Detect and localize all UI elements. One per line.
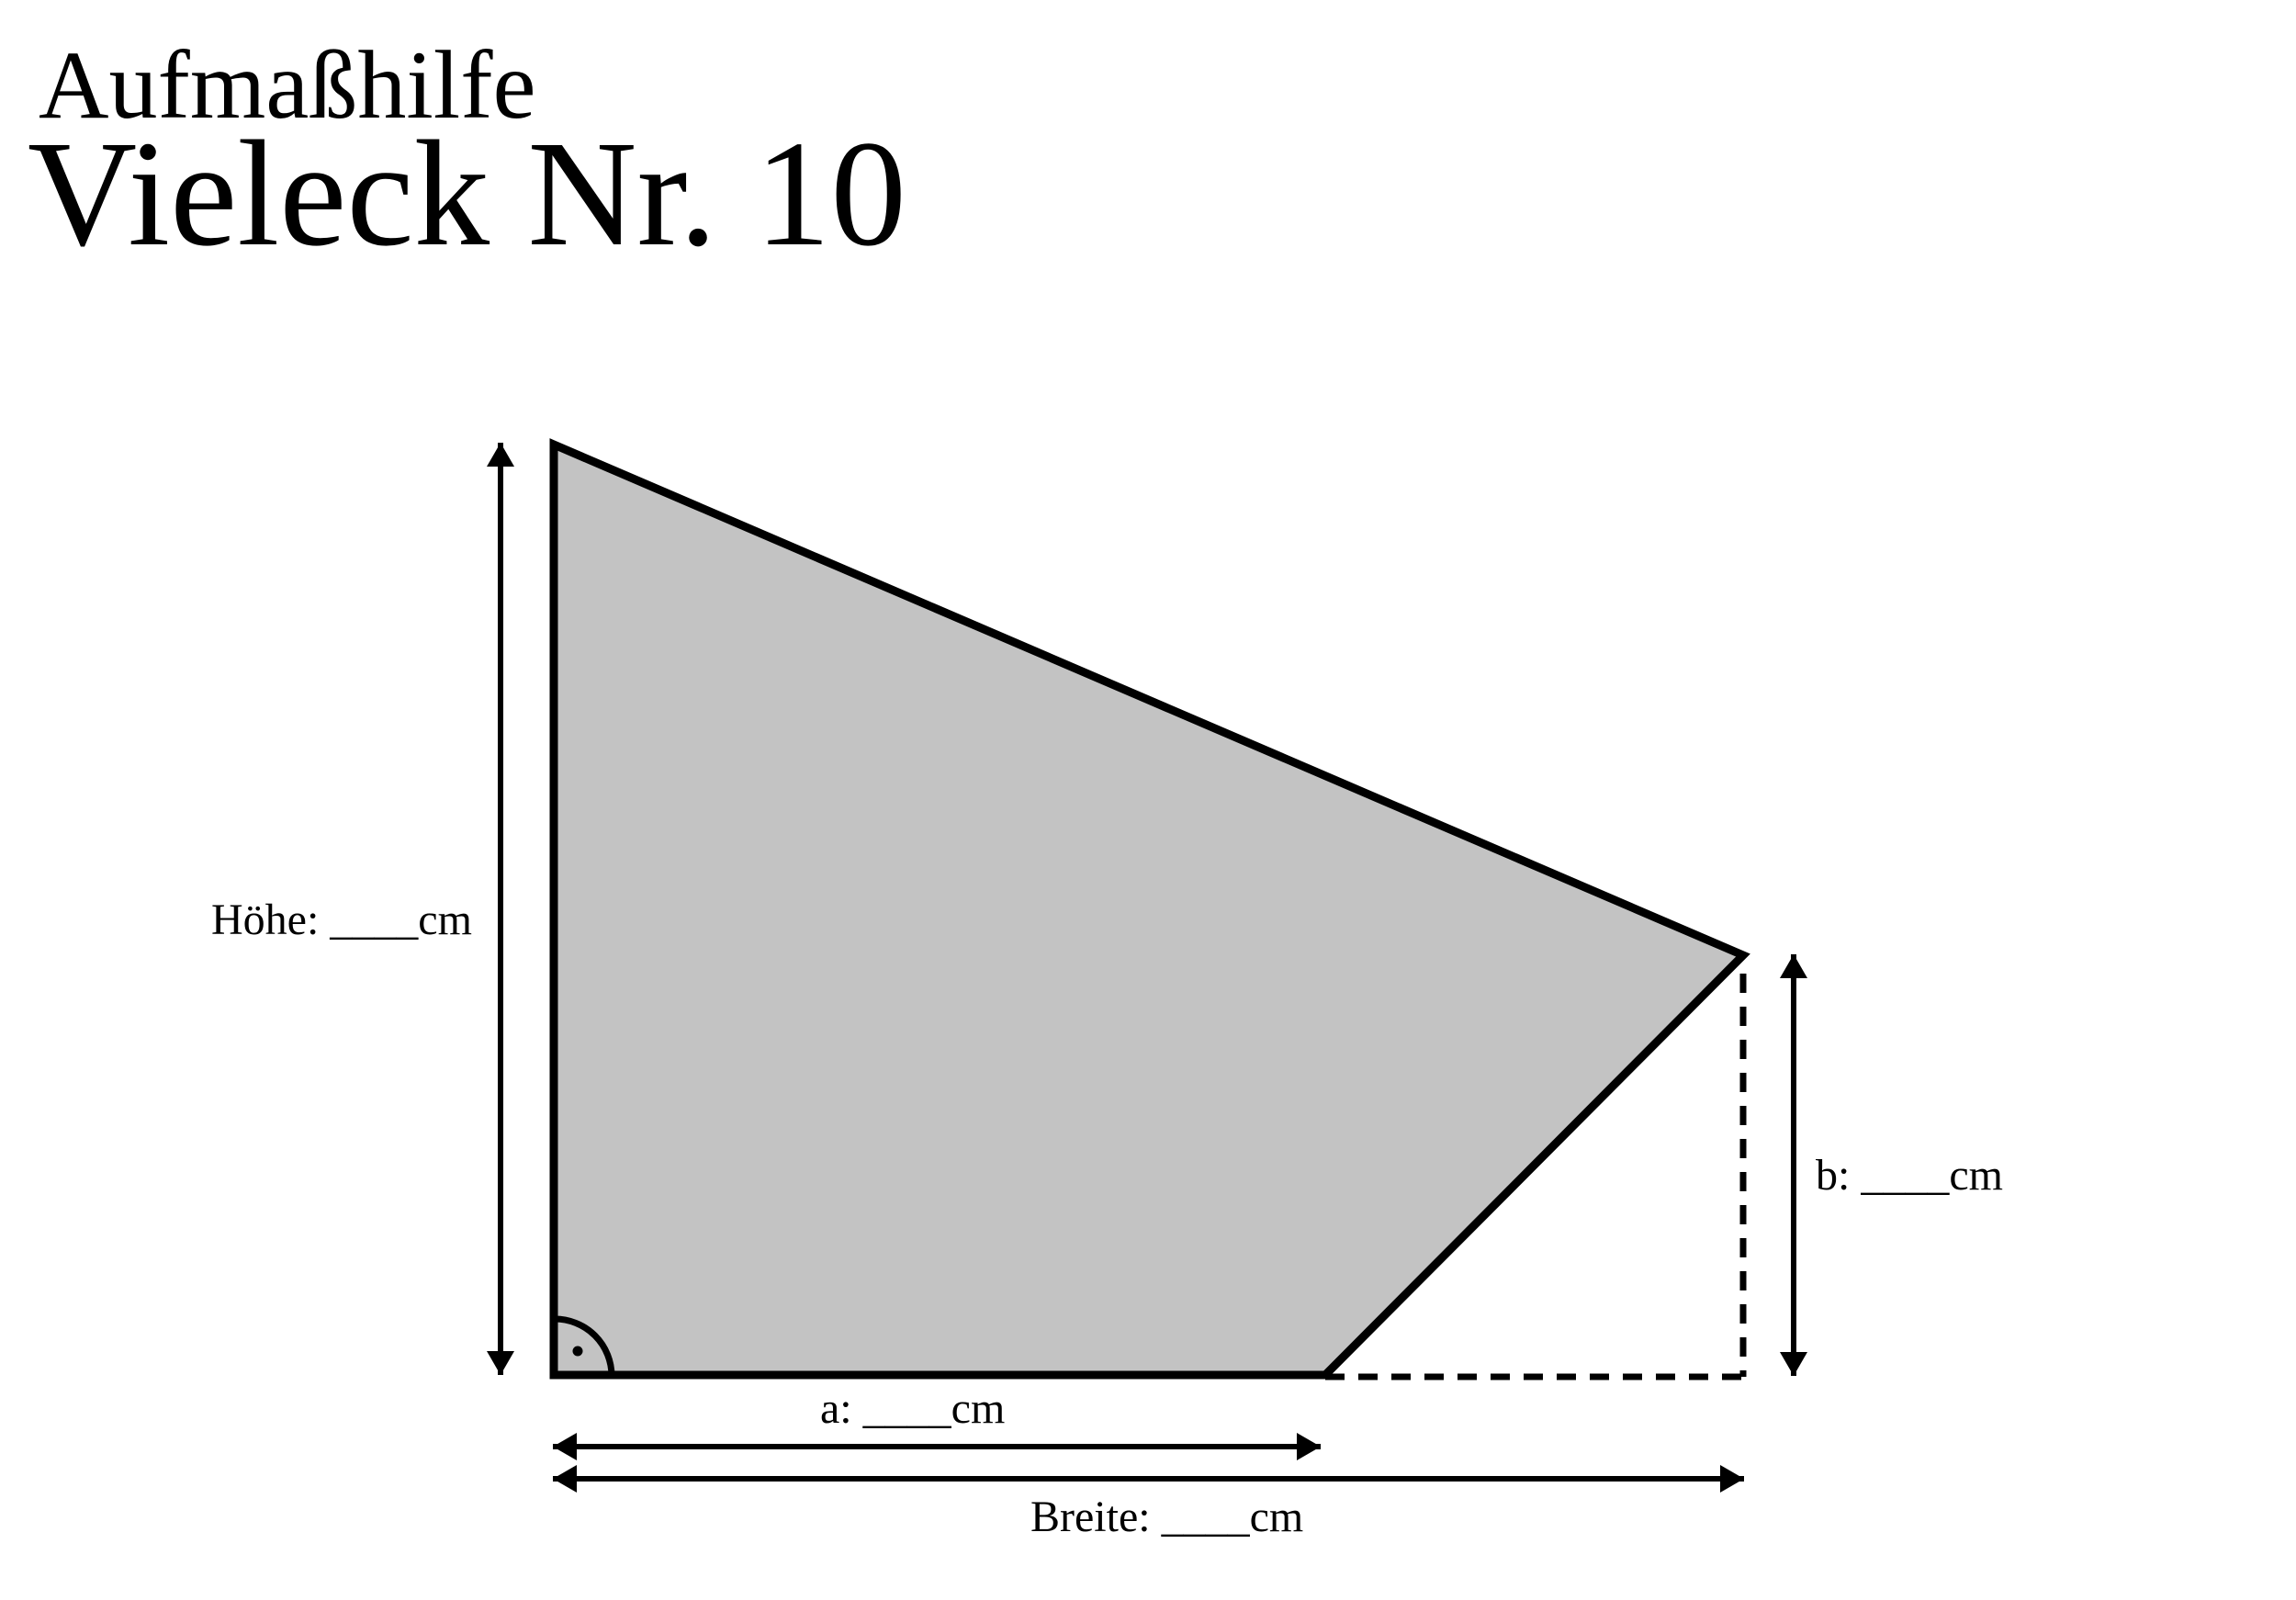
b-dimension-label: b: ____cm <box>1816 1154 2003 1198</box>
worksheet-page: Aufmaßhilfe Vieleck Nr. 10 Höhe: ____cm … <box>0 0 2296 1600</box>
polygon-figure <box>0 0 2296 1600</box>
hoehe-dimension-label: Höhe: ____cm <box>211 898 472 942</box>
breite-dimension-label: Breite: ____cm <box>1030 1495 1303 1539</box>
polygon-shape <box>554 445 1743 1375</box>
right-angle-dot <box>573 1346 583 1357</box>
a-dimension-label: a: ____cm <box>820 1387 1005 1431</box>
